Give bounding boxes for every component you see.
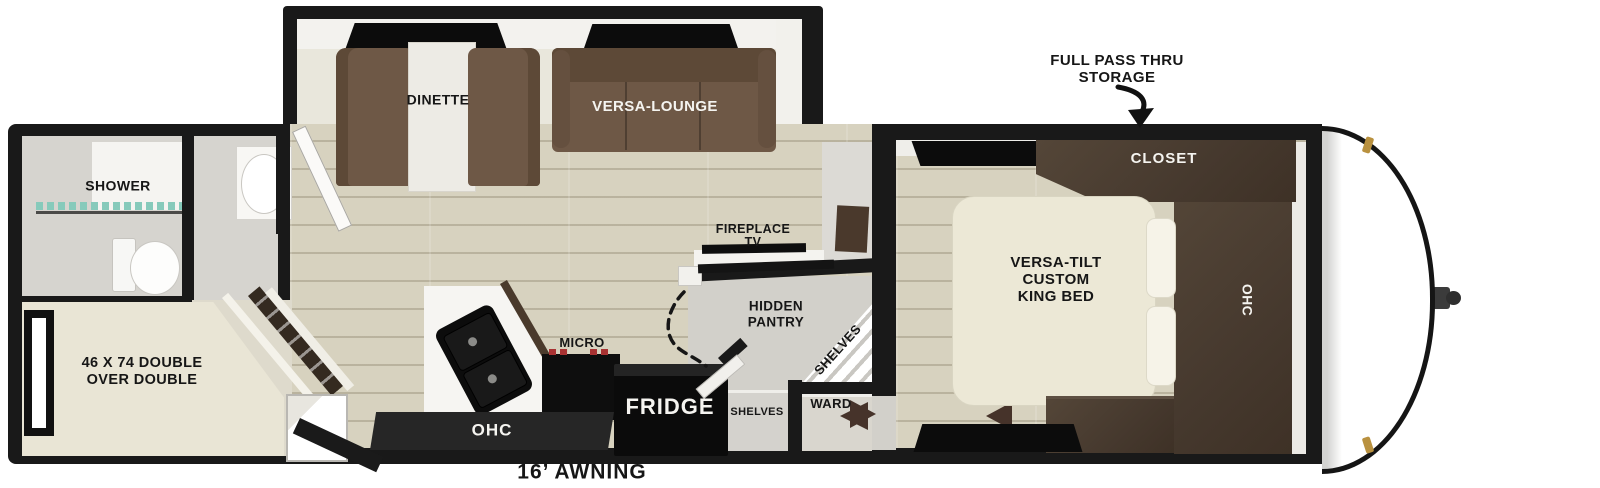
hitch-coupler [1446, 291, 1461, 305]
bed-pillow-top [1146, 218, 1176, 298]
label-king-bed-3: KING BED [1018, 289, 1095, 306]
label-versa-lounge: VERSA-LOUNGE [592, 99, 718, 116]
slideout-end-wall [776, 20, 802, 130]
shower-glass-teal [36, 202, 182, 210]
tv-wall-panel [835, 205, 869, 253]
label-storage-line1: FULL PASS THRU [1050, 53, 1183, 70]
burner-knob-1 [549, 349, 556, 355]
dinette-table [408, 42, 476, 192]
wall-ward-top [800, 382, 878, 394]
wall-bath-right [276, 124, 290, 234]
label-dinette: DINETTE [407, 92, 470, 107]
slideout-window-right [583, 24, 739, 51]
label-bunk-line2: OVER DOUBLE [87, 373, 198, 389]
sofa-arm-right [758, 50, 776, 148]
label-bedroom-ohc: OHC [1239, 284, 1254, 316]
label-kitchen-ohc: OHC [472, 422, 513, 441]
bunk-window-glass [32, 318, 46, 428]
bedroom-window-bottom [910, 424, 1086, 452]
label-micro: MICRO [559, 336, 604, 350]
bed-pillow-bottom [1146, 306, 1176, 386]
hall-shelves-cell [728, 390, 788, 451]
label-shower: SHOWER [85, 178, 150, 193]
sofa-seam-2 [699, 82, 701, 150]
bedroom-ohc-cabinet [1174, 184, 1292, 454]
label-king-bed-2: CUSTOM [1022, 272, 1089, 289]
label-ward: WARD [810, 397, 851, 411]
label-closet: CLOSET [1131, 151, 1198, 168]
floorplan-canvas: DINETTE VERSA-LOUNGE SHOWER 46 X 74 DOUB… [0, 0, 1600, 488]
sofa-seam-1 [625, 82, 627, 150]
sofa-arm-left [552, 50, 570, 148]
label-awning: 16’ AWNING [517, 460, 646, 483]
toilet-bowl [130, 241, 180, 295]
label-hidden-pantry-2: PANTRY [748, 316, 804, 331]
label-storage-line2: STORAGE [1079, 70, 1156, 87]
label-fridge: FRIDGE [625, 395, 714, 419]
range-cooktop [542, 354, 620, 420]
dinette-bench-left [336, 48, 414, 186]
front-cap [1322, 126, 1435, 474]
label-hidden-pantry-1: HIDDEN [749, 300, 803, 315]
shower-pan [92, 142, 182, 210]
label-king-bed-1: VERSA-TILT [1010, 255, 1101, 272]
dinette-bench-right [468, 48, 540, 186]
storage-arrow-shaft [1118, 87, 1144, 112]
doorway-triangle-left [850, 400, 876, 428]
label-fireplace-tv: TV [745, 236, 762, 250]
shower-glass-track [36, 211, 182, 214]
label-hall-shelves: SHELVES [730, 406, 783, 418]
wall-shower-divider [182, 136, 194, 300]
label-bunk-line1: 46 X 74 DOUBLE [82, 356, 203, 372]
